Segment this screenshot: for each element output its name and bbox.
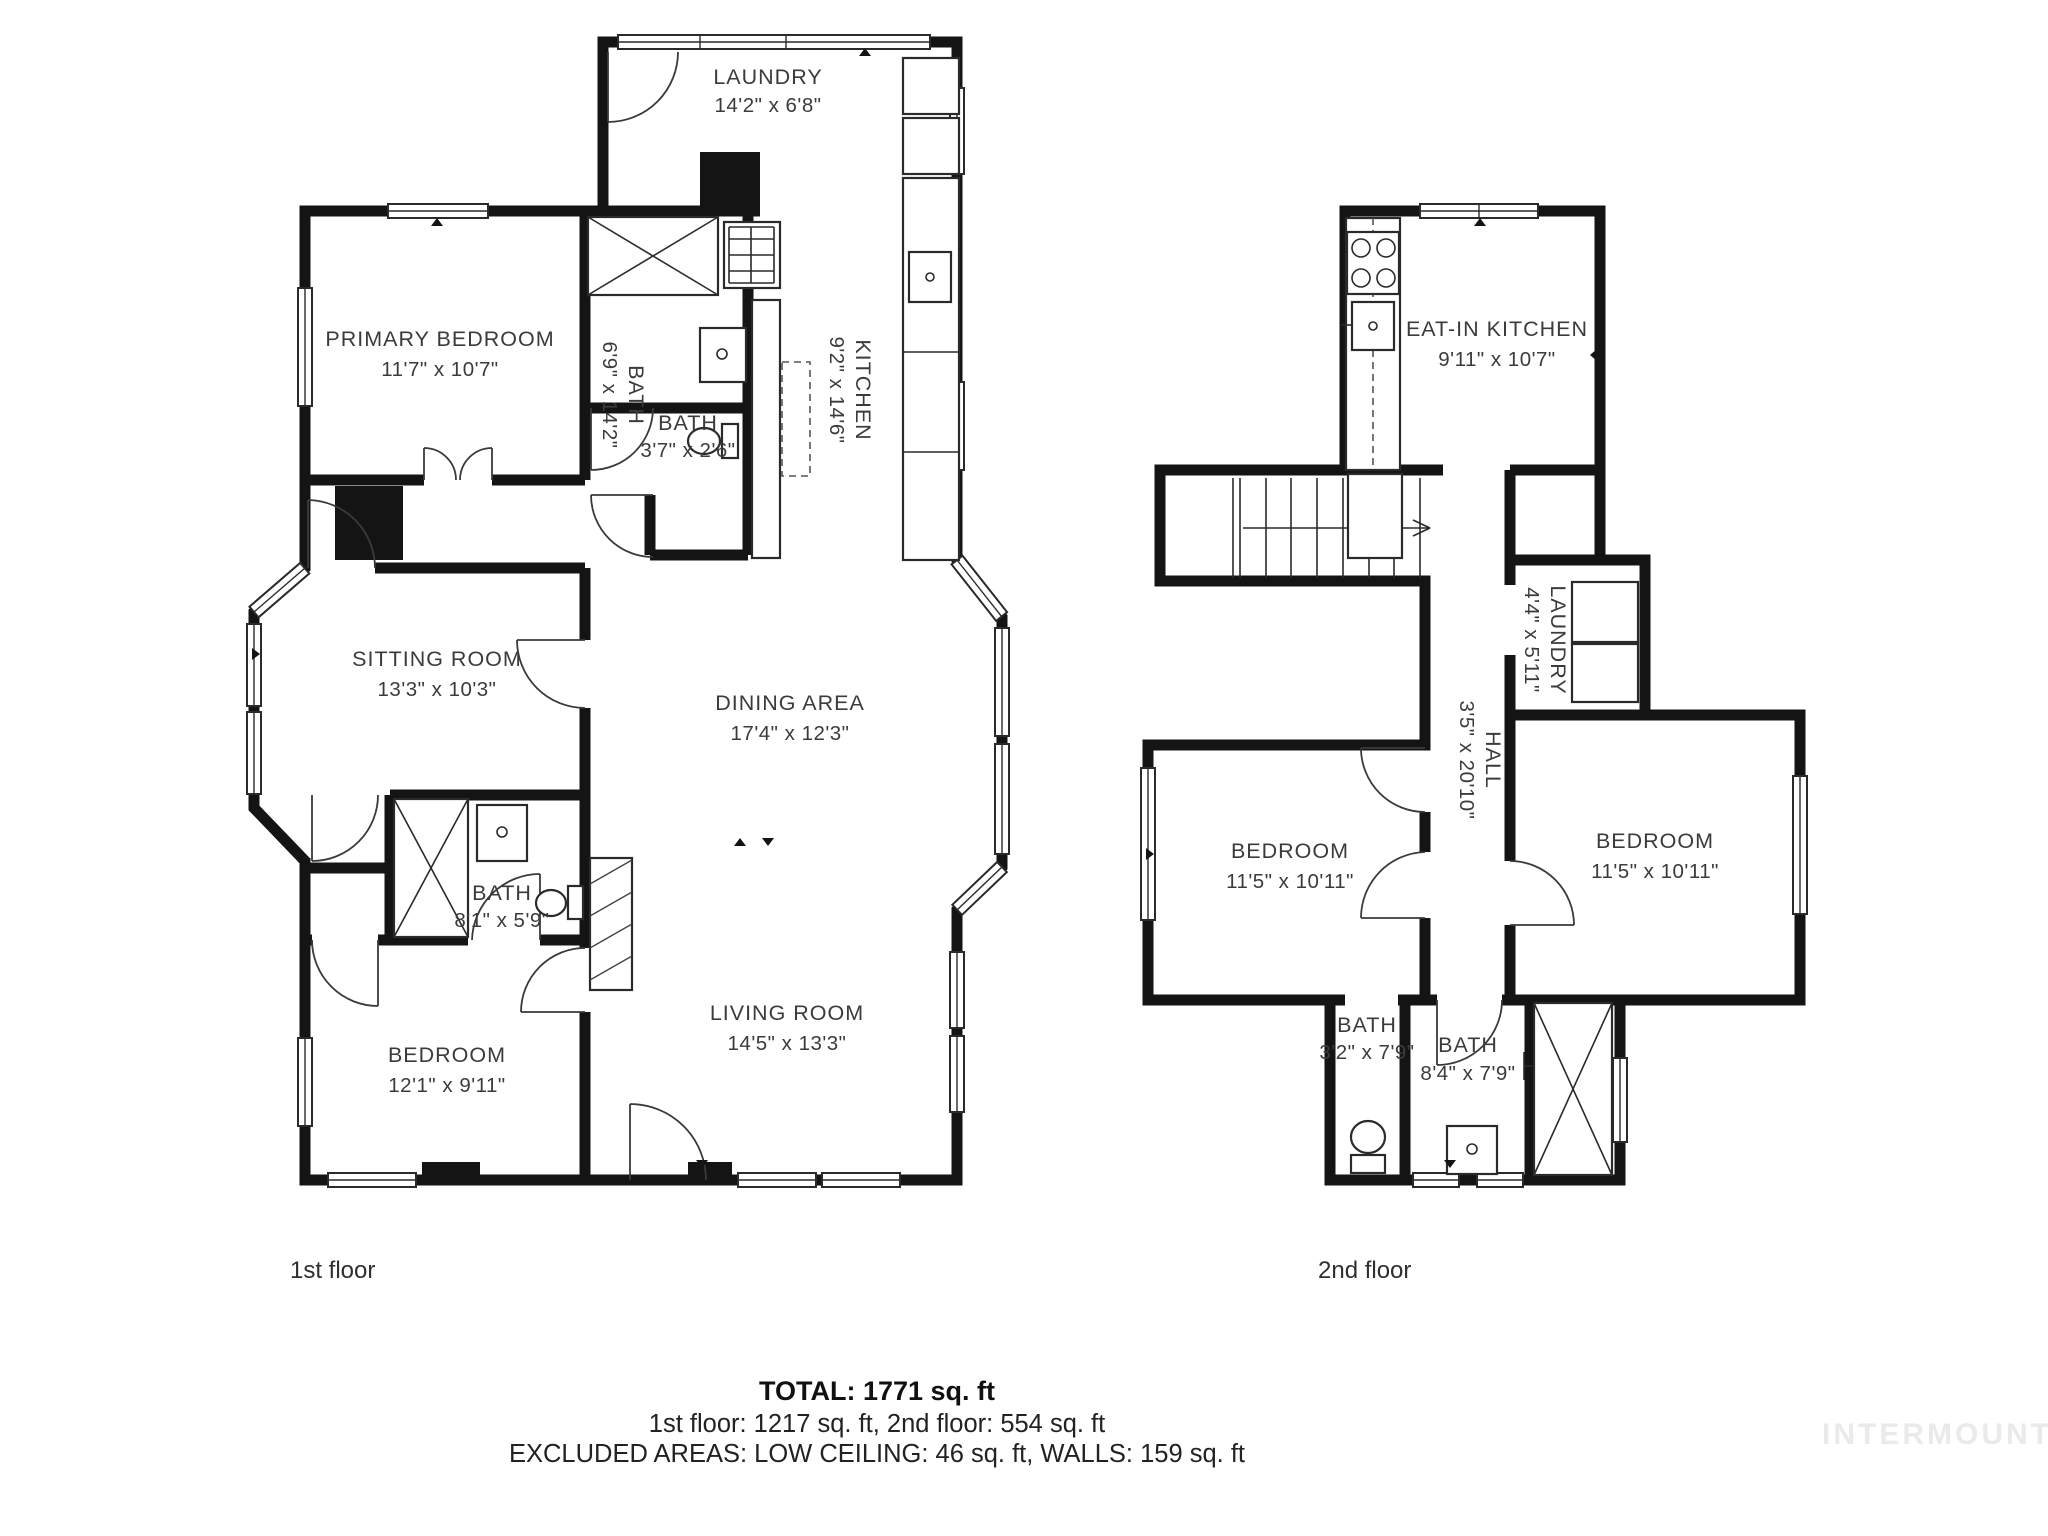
room-label-hall: HALL (1481, 731, 1505, 789)
floor2-fixtures (1233, 218, 1638, 1175)
room-dims-bath-left: 3'2" x 7'9" (1319, 1041, 1414, 1064)
room-dims-kitchen: 9'2" x 14'6" (825, 336, 848, 443)
room-label-bath-middle: BATH (1438, 1033, 1498, 1057)
watermark: INTERMOUNTAIN (1822, 1418, 2048, 1451)
kitchen-peninsula (752, 300, 780, 558)
washer-icon (903, 58, 959, 114)
summary-excluded: EXCLUDED AREAS: LOW CEILING: 46 sq. ft, … (509, 1440, 1245, 1468)
room-dims-laundry2: 4'4" x 5'11" (1520, 587, 1543, 693)
room-label-laundry2: LAUNDRY (1546, 585, 1570, 694)
floor-plan-svg: LAUNDRY 14'2" x 6'8" PRIMARY BEDROOM 11'… (0, 0, 2048, 1536)
room-dims-eat-in-kitchen: 9'11" x 10'7" (1438, 348, 1555, 371)
kitchen-sink-icon (909, 252, 951, 302)
summary-block: TOTAL: 1771 sq. ft 1st floor: 1217 sq. f… (509, 1376, 1245, 1468)
room-label-primary-bedroom: PRIMARY BEDROOM (325, 327, 554, 351)
summary-floors: 1st floor: 1217 sq. ft, 2nd floor: 554 s… (649, 1410, 1105, 1438)
room-label-kitchen: KITCHEN (851, 339, 875, 440)
room-label-bath-small: BATH (658, 411, 718, 435)
room-label-bath-left: BATH (1337, 1013, 1397, 1037)
room-dims-primary-bedroom: 11'7" x 10'7" (381, 358, 498, 381)
pantry-closet (590, 858, 632, 990)
room-label-bedroom-left: BEDROOM (1231, 839, 1349, 863)
room-label-laundry: LAUNDRY (713, 65, 822, 89)
room-label-dining-area: DINING AREA (715, 691, 865, 715)
room-label-bedroom: BEDROOM (388, 1043, 506, 1067)
room-label-eat-in-kitchen: EAT-IN KITCHEN (1406, 317, 1588, 341)
room-dims-bedroom-right: 11'5" x 10'11" (1591, 860, 1719, 883)
room-dims-bedroom: 12'1" x 9'11" (388, 1074, 505, 1097)
room-dims-dining-area: 17'4" x 12'3" (731, 722, 850, 745)
bath-sink-icon (1447, 1126, 1497, 1174)
cabinet (1348, 474, 1402, 558)
kitchen-sink-icon (1352, 302, 1394, 350)
room-dims-sitting-room: 13'3" x 10'3" (378, 678, 497, 701)
washer-icon (1572, 582, 1638, 642)
kitchen-counter (903, 178, 959, 560)
room-dims-bath-main: 6'9" x 14'2" (598, 341, 621, 448)
bath-sink-icon (477, 805, 527, 861)
floor1-label: 1st floor (290, 1257, 375, 1284)
toilet-icon (1351, 1121, 1385, 1153)
summary-total: TOTAL: 1771 sq. ft (759, 1376, 995, 1406)
room-label-bath-main: BATH (624, 365, 648, 425)
room-label-bedroom-right: BEDROOM (1596, 829, 1714, 853)
second-floor-plan: EAT-IN KITCHEN 9'11" x 10'7" LAUNDRY 4'4… (1141, 204, 1807, 1284)
room-label-sitting-room: SITTING ROOM (352, 647, 522, 671)
room-label-living-room: LIVING ROOM (710, 1001, 864, 1025)
floor1-fixtures (394, 58, 959, 990)
room-dims-bedroom-left: 11'5" x 10'11" (1226, 870, 1354, 893)
dishwasher-icon (782, 362, 810, 476)
room-dims-laundry: 14'2" x 6'8" (714, 94, 821, 117)
dryer-icon (903, 118, 959, 174)
room-dims-hall: 3'5" x 20'10" (1455, 701, 1478, 820)
room-dims-living-room: 14'5" x 13'3" (728, 1032, 847, 1055)
first-floor-plan: LAUNDRY 14'2" x 6'8" PRIMARY BEDROOM 11'… (247, 35, 1009, 1284)
dryer-icon (1572, 644, 1638, 702)
room-dims-bath-hall: 8'1" x 5'9" (454, 909, 549, 932)
floor2-label: 2nd floor (1318, 1257, 1411, 1284)
bath-sink-icon (700, 328, 746, 382)
room-dims-bath-small: 3'7" x 2'6" (640, 439, 735, 462)
room-dims-bath-middle: 8'4" x 7'9" (1420, 1062, 1515, 1085)
room-label-bath-hall: BATH (472, 881, 532, 905)
